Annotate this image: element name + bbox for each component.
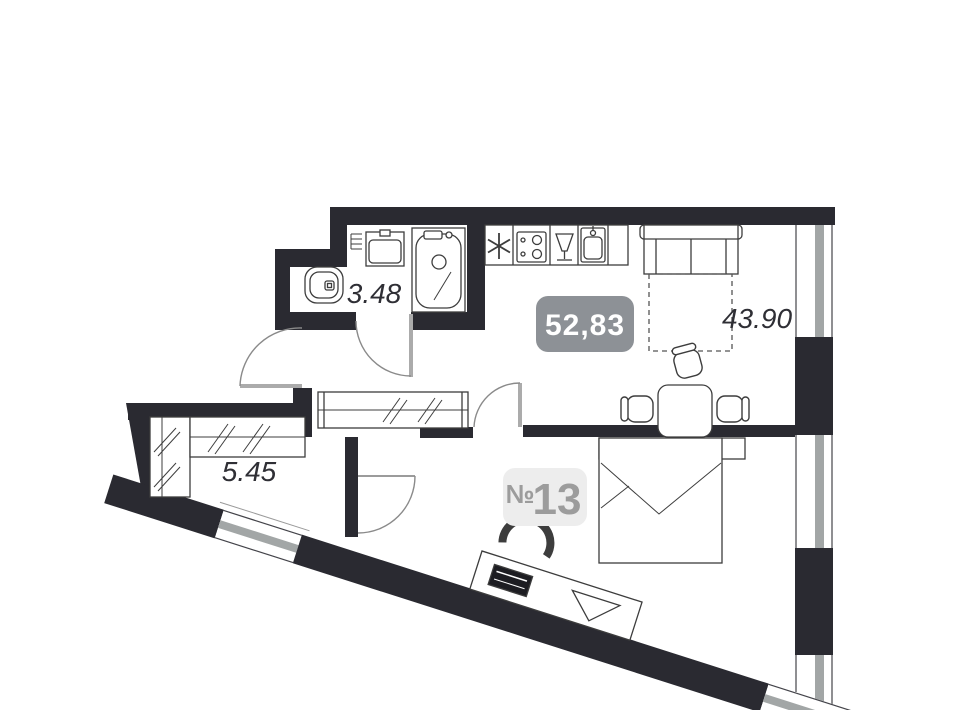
closet-wardrobe-left [150,417,190,497]
bathroom-area-label: 3.48 [347,278,402,309]
facade-window-1 [209,502,309,565]
wall-bath-bottom-left [275,312,356,330]
unit-number-value: 13 [533,475,582,524]
total-area-value: 52,83 [545,309,625,342]
toilet-icon [305,267,343,303]
wall-closet-stub [345,437,358,537]
living-area-label: 43.90 [722,303,792,334]
floor-plan-drawing: 3.48 5.45 43.90 52,83 № 13 [0,0,960,710]
bed [599,438,745,563]
wall-bath-right [467,225,485,330]
dining-table [658,385,712,437]
window-right-2 [796,435,832,548]
closet-wardrobe-top [190,417,305,457]
kitchen-sink-icon [581,226,605,262]
washbasin-icon [366,230,404,266]
chair-left [621,396,653,422]
hall-area-label: 5.45 [222,456,277,487]
closet-door-arc [358,476,415,533]
sofa-bed-outline [649,274,732,351]
unit-number-prefix: № [506,479,535,509]
kitchen-counter [485,225,628,265]
bathtub-icon [412,228,465,312]
chair-right [717,396,749,422]
facade-window-2 [760,684,893,710]
bathroom-door-arc [356,321,411,376]
wall-top [345,207,835,225]
unit-number-badge: № 13 [503,468,587,526]
floor-plan: 3.48 5.45 43.90 52,83 № 13 [0,0,960,710]
wall-right-segment-1 [795,337,833,435]
towel-rail-icon [351,234,362,249]
chair-top [671,342,704,380]
stove-icon [517,232,546,262]
total-area-badge: 52,83 [536,296,634,352]
entry-door-arc [240,328,302,386]
hall-wardrobe [318,392,468,428]
wall-right-segment-2 [795,548,833,655]
sofa [640,225,742,274]
window-right-1 [796,225,832,337]
room-door-arc [474,383,520,427]
